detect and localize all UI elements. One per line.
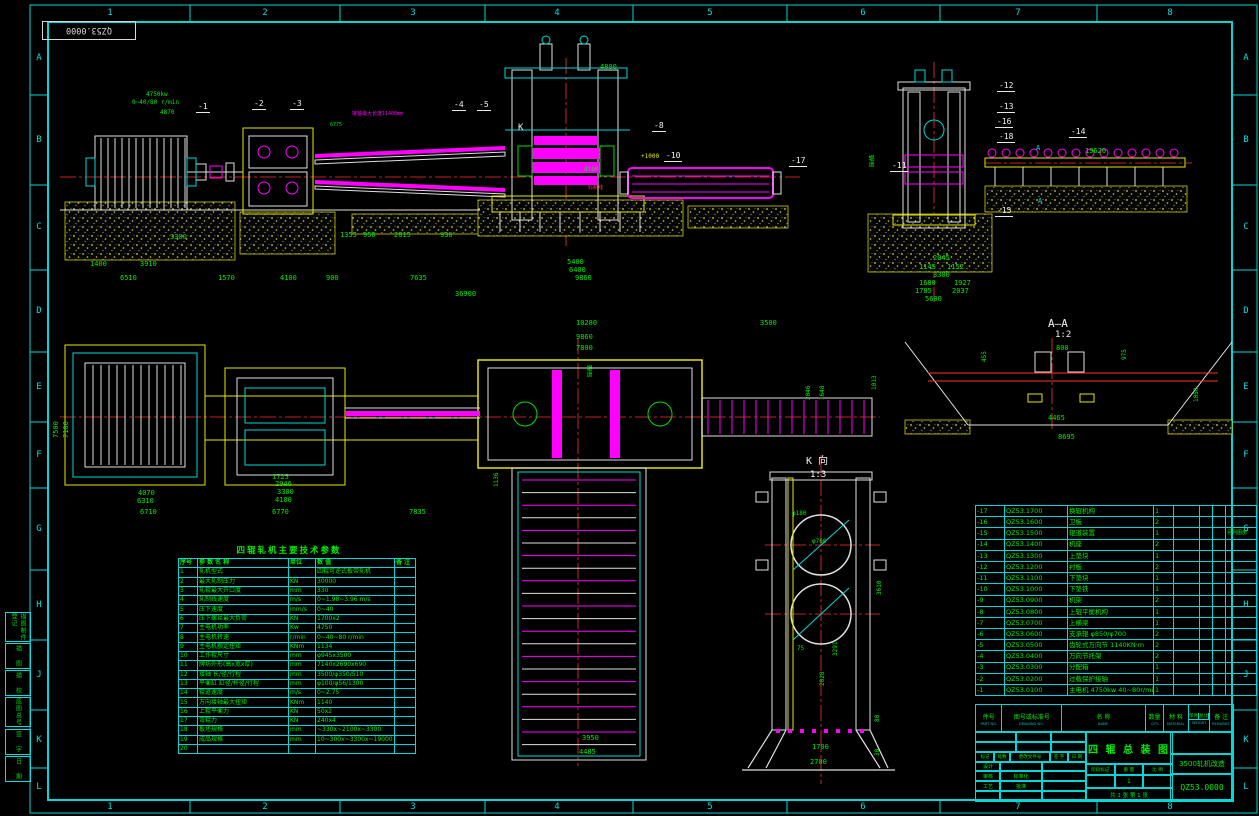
bom-cell (1174, 685, 1200, 696)
bom-cell: -2 (976, 673, 1005, 684)
bom-cell (1213, 550, 1226, 561)
bom-cell (1213, 595, 1226, 606)
table-cell: mm (289, 670, 316, 679)
table-cell: KN (289, 614, 316, 623)
bom-cell: 另列图册 (1226, 528, 1257, 539)
frame-row-label: F (1243, 450, 1248, 460)
part-callout: -12 (997, 82, 1015, 92)
dimension-label: φ180 (792, 511, 806, 517)
bom-cell (1174, 528, 1200, 539)
bom-cell (1200, 550, 1213, 561)
table-cell: 牌坊外形(高x宽x厚) (198, 661, 289, 670)
bom-cell: 2 (1154, 640, 1174, 651)
dimension-label: +1000 (641, 154, 659, 160)
table-cell (395, 670, 416, 679)
table-cell (395, 624, 416, 633)
dimension-label: 1570 (218, 275, 235, 282)
table-row: 20 (179, 744, 416, 753)
bom-row: -11QZ53.1100下垫块1 (976, 573, 1257, 584)
bom-cell: 1 (1154, 506, 1174, 517)
bom-cell (1226, 506, 1257, 517)
dimension-label: 7835 (409, 509, 426, 516)
bom-row: -15QZ53.1500辊道装置1另列图册 (976, 528, 1257, 539)
table-cell: mm (289, 679, 316, 688)
dimension-label: 950 (363, 232, 376, 239)
bom-cell: 2 (1154, 539, 1174, 550)
dimension-label: 2028 (820, 672, 826, 686)
bom-cell: -3 (976, 662, 1005, 673)
dimension-label: 1145 (919, 264, 936, 271)
bom-cell (1174, 517, 1200, 528)
table-cell: 12 (179, 670, 198, 679)
bom-cell: -13 (976, 550, 1005, 561)
table-cell (395, 586, 416, 595)
dimension-label: 2700 (810, 759, 827, 766)
part-callout: -15 (995, 207, 1013, 217)
table-cell: 数 值 (316, 559, 395, 568)
bom-cell (1226, 584, 1257, 595)
table-cell: 7 (179, 624, 198, 633)
drawing-number: QZ53.0000 (1170, 773, 1234, 802)
bom-cell (1213, 685, 1226, 696)
table-cell: 6 (179, 614, 198, 623)
dimension-label: 1785 (915, 288, 932, 295)
bom-header-cell: 材 料MATERIAL (1164, 705, 1189, 732)
dimension-label: 9860 (576, 334, 593, 341)
dimension-label: K 向 (806, 457, 828, 467)
table-cell (395, 717, 416, 726)
dimension-label: 1680 (919, 280, 936, 287)
bom-cell (1226, 606, 1257, 617)
table-cell: mm (289, 726, 316, 735)
table-cell: 4750 (316, 624, 395, 633)
table-cell: 四辊可逆式板带轧机 (316, 568, 395, 577)
dimension-label: 1400 (90, 261, 107, 268)
bom-cell (1213, 528, 1226, 539)
bom-header-cell: 备 注REMARKS (1210, 705, 1233, 732)
table-cell: KN (289, 707, 316, 716)
bom-cell (1200, 673, 1213, 684)
table-cell (395, 614, 416, 623)
project-name: 3500轧机改造 (1170, 753, 1234, 775)
bom-cell (1174, 595, 1200, 606)
bom-row: -1QZ53.0100主电机 4750kw 40~80r/min1 (976, 685, 1257, 696)
margin-note: 描 校 (5, 670, 31, 696)
dimension-label: 6310 (137, 498, 154, 505)
bom-cell (1226, 685, 1257, 696)
dimension-label: 930 (440, 232, 453, 239)
table-cell: 成品规格 (198, 735, 289, 744)
dimension-label: 2946 (275, 481, 292, 488)
bom-cell (1226, 662, 1257, 673)
bom-row: -6QZ53.0600支承辊 φ850/φ7002 (976, 629, 1257, 640)
frame-column-label: 5 (707, 802, 712, 812)
table-row: 13平衡缸 缸径/杆径/行程mmφ100/φ56/1300 (179, 679, 416, 688)
bom-cell: 1 (1154, 573, 1174, 584)
frame-row-label: K (36, 735, 41, 745)
bom-cell (1200, 606, 1213, 617)
bom-cell: -16 (976, 517, 1005, 528)
spec-table: 序号参 数 名 称单位数 值备 注1轧机型式四辊可逆式板带轧机2最大轧制压力KN… (178, 558, 416, 754)
bom-row: -12QZ53.1200衬板2 (976, 561, 1257, 572)
table-row: 12接轴 长/径/行程mm3500/φ350/510 (179, 670, 416, 679)
table-cell: 5 (179, 605, 198, 614)
bom-cell: -11 (976, 573, 1005, 584)
bom-cell (1213, 584, 1226, 595)
bom-cell: QZ53.1100 (1005, 573, 1068, 584)
bom-cell: QZ53.1300 (1005, 550, 1068, 561)
frame-column-label: 1 (107, 8, 112, 18)
table-cell (395, 568, 416, 577)
table-cell: 10~300x~3300x~19000 (316, 735, 395, 744)
frame-column-label: 1 (107, 802, 112, 812)
table-row: 序号参 数 名 称单位数 值备 注 (179, 559, 416, 568)
table-cell: 上辊平衡力 (198, 707, 289, 716)
table-cell: 平衡缸 缸径/杆径/行程 (198, 679, 289, 688)
bom-cell: 主电机 4750kw 40~80r/min (1068, 685, 1154, 696)
bom-cell (1226, 561, 1257, 572)
bom-cell: -15 (976, 528, 1005, 539)
table-row: 3轧辊最大开口度mm330 (179, 586, 416, 595)
table-cell: 接轴 长/径/行程 (198, 670, 289, 679)
part-callout: -11 (890, 162, 908, 172)
cad-drawing-sheet: { "frame": { "corner_label": "QZ53.0000"… (0, 0, 1259, 816)
bom-cell: 1 (1154, 606, 1174, 617)
table-row: 18板坯规格mm~330x~2100x~3300 (179, 726, 416, 735)
frame-column-label: 7 (1015, 8, 1020, 18)
frame-row-label: J (36, 670, 41, 680)
dimension-label: 2046 (806, 386, 812, 400)
table-row: 2最大轧制压力KN30000 (179, 577, 416, 586)
bom-cell (1174, 539, 1200, 550)
frame-row-label: C (36, 222, 41, 232)
table-cell: 弯辊力 (198, 717, 289, 726)
bom-cell (1174, 584, 1200, 595)
bom-cell: 1 (1154, 550, 1174, 561)
bom-cell (1174, 673, 1200, 684)
dimension-label: 辊道 (585, 365, 591, 377)
bom-cell: QZ53.1700 (1005, 506, 1068, 517)
frame-row-label: E (1243, 382, 1248, 392)
bom-cell: -17 (976, 506, 1005, 517)
frame-column-label: 6 (860, 802, 865, 812)
bom-cell (1200, 573, 1213, 584)
bom-row: -10QZ53.1000下垫铁1 (976, 584, 1257, 595)
table-cell: 序号 (179, 559, 198, 568)
dimension-label: 0~40/80 r/min (132, 100, 179, 106)
frame-row-label: A (36, 53, 41, 63)
dimension-label: 455 (982, 351, 988, 362)
bom-table: -17QZ53.1700换辊机构1-16QZ53.1600卫板2-15QZ53.… (975, 505, 1257, 696)
part-callout: -17 (789, 157, 807, 167)
dimension-label: 1050 (1194, 388, 1200, 402)
dimension-label: 5400 (567, 259, 584, 266)
bom-cell (1200, 617, 1213, 628)
bom-cell: QZ53.1400 (1005, 539, 1068, 550)
frame-row-label: G (36, 524, 41, 534)
table-cell (198, 744, 289, 753)
bom-row: -9QZ53.0900机架2 (976, 595, 1257, 606)
dimension-label: 4750kw (146, 92, 168, 98)
frame-column-label: 8 (1167, 8, 1172, 18)
dimension-label: 3500 (760, 320, 777, 327)
dimension-label: 900 (326, 275, 339, 282)
table-cell: 板坯规格 (198, 726, 289, 735)
bom-cell (1174, 506, 1200, 517)
table-row: 14辊道速度m/s0~2.75 (179, 689, 416, 698)
part-callout: -5 (477, 101, 491, 111)
table-cell: 0~2.75 (316, 689, 395, 698)
bom-cell (1213, 561, 1226, 572)
table-cell (395, 679, 416, 688)
table-row: 8主电机转速r/min0~40~80 r/min (179, 633, 416, 642)
bom-cell (1213, 506, 1226, 517)
part-callout: -4 (452, 101, 466, 111)
bom-cell (1200, 506, 1213, 517)
bom-cell: 1 (1154, 662, 1174, 673)
bom-cell (1226, 595, 1257, 606)
table-cell: 8 (179, 633, 198, 642)
table-cell: 13 (179, 679, 198, 688)
bom-header-cell: 件号PART NO. (976, 705, 1002, 732)
bom-cell (1226, 651, 1257, 662)
dimension-label: 4100 (280, 275, 297, 282)
table-cell: 11 (179, 661, 198, 670)
table-cell (395, 633, 416, 642)
bom-cell (1213, 517, 1226, 528)
dimension-label: 1136 (494, 473, 500, 487)
bom-cell (1200, 539, 1213, 550)
bom-header-cell: 图号或标准号DRAWING NO. (1002, 705, 1062, 732)
table-cell: 16 (179, 707, 198, 716)
bom-cell (1213, 651, 1226, 662)
dimension-label: A (1038, 198, 1042, 205)
table-row: 6压下螺丝最大负荷KN1700x2 (179, 614, 416, 623)
dimension-label: 7500 (53, 421, 60, 438)
bom-cell: 上垫块 (1068, 550, 1154, 561)
table-cell (395, 651, 416, 660)
table-cell: 240x4 (316, 717, 395, 726)
table-cell: KN (289, 577, 316, 586)
bom-cell (1213, 606, 1226, 617)
bom-cell: -8 (976, 606, 1005, 617)
table-cell: 工作辊尺寸 (198, 651, 289, 660)
table-cell: 主电机额定扭矩 (198, 642, 289, 651)
bom-cell (1200, 662, 1213, 673)
table-cell (395, 735, 416, 744)
dimension-label: 轧制线 (588, 186, 603, 191)
frame-row-label: E (36, 382, 41, 392)
margin-note: 日 期 (5, 756, 31, 782)
dimension-label: 6710 (140, 509, 157, 516)
frame-row-label: L (1243, 782, 1248, 792)
bom-cell: -5 (976, 640, 1005, 651)
dimension-label: 接轴最大长度11400mm (352, 112, 403, 117)
dimension-label: 4465 (1048, 415, 1065, 422)
bom-cell: QZ53.1000 (1005, 584, 1068, 595)
bom-cell (1200, 595, 1213, 606)
dimension-label: 7800 (576, 345, 593, 352)
bom-header-cell: 单件总计WEIGHT (1189, 705, 1211, 732)
part-callout: -18 (997, 133, 1015, 143)
bom-cell (1226, 617, 1257, 628)
table-cell: mm (289, 661, 316, 670)
table-cell (395, 707, 416, 716)
bom-cell (1174, 640, 1200, 651)
bom-cell: 分配箱 (1068, 662, 1154, 673)
company-cell (1170, 731, 1234, 755)
bom-row: -17QZ53.1700换辊机构1 (976, 506, 1257, 517)
table-row: 16上辊平衡力KN50x2 (179, 707, 416, 716)
bom-cell (1213, 662, 1226, 673)
table-cell: 轧制线速度 (198, 596, 289, 605)
table-cell: 备 注 (395, 559, 416, 568)
table-cell (395, 726, 416, 735)
dimension-label: φ760 (812, 539, 826, 545)
table-row: 15万向接轴最大扭矩KNm1140 (179, 698, 416, 707)
bom-cell: QZ53.0200 (1005, 673, 1068, 684)
bom-cell: 2 (1154, 595, 1174, 606)
title-block-cell (1041, 790, 1087, 802)
part-callout: -14 (1069, 128, 1087, 138)
revision-zone: 标记处数更改文件号签 字日 期设计审核标准化工艺批准 (975, 731, 1085, 800)
dimension-label: 975 (1122, 349, 1128, 360)
bom-cell (1226, 673, 1257, 684)
bom-row: -13QZ53.1300上垫块1 (976, 550, 1257, 561)
bom-cell: 上辊平衡机构 (1068, 606, 1154, 617)
dimension-label: 1013 (872, 376, 878, 390)
bom-row: -2QZ53.0200过载保护接轴1 (976, 673, 1257, 684)
table-cell: 3 (179, 586, 198, 595)
table-cell (289, 568, 316, 577)
bom-cell: QZ53.1200 (1005, 561, 1068, 572)
dimension-label: 6510 (120, 275, 137, 282)
bom-cell: 下垫块 (1068, 573, 1154, 584)
frame-column-label: 4 (554, 8, 559, 18)
bom-cell (1226, 539, 1257, 550)
margin-note: 描 图 (5, 643, 31, 669)
bom-cell: 1 (1154, 673, 1174, 684)
bom-cell: QZ53.0700 (1005, 617, 1068, 628)
frame-column-label: 3 (410, 8, 415, 18)
table-cell: KNm (289, 698, 316, 707)
frame-row-label: L (36, 782, 41, 792)
dimension-label: 5600 (925, 296, 942, 303)
table-cell: 2 (179, 577, 198, 586)
bom-cell (1174, 606, 1200, 617)
dimension-label: 3300 (170, 234, 187, 241)
frame-column-label: 6 (860, 8, 865, 18)
bom-cell: 1 (1154, 685, 1174, 696)
table-cell: 7140x2690x690 (316, 661, 395, 670)
dimension-label: 辊道 (867, 155, 873, 167)
frame-column-label: 4 (554, 802, 559, 812)
corner-drawing-number: QZ53.0000 (42, 21, 136, 40)
table-cell (395, 689, 416, 698)
bom-cell: -6 (976, 629, 1005, 640)
table-cell: mm/s (289, 605, 316, 614)
table-row: 19成品规格mm10~300x~3300x~19000 (179, 735, 416, 744)
bom-cell: QZ53.0100 (1005, 685, 1068, 696)
table-cell: 参 数 名 称 (198, 559, 289, 568)
dimension-label: 7100 (63, 421, 70, 438)
table-cell: mm (289, 735, 316, 744)
table-cell: φ100/φ56/1300 (316, 679, 395, 688)
bom-header: 件号PART NO.图号或标准号DRAWING NO.名 称NAME数量QTY.… (975, 704, 1234, 733)
bom-cell: QZ53.0900 (1005, 595, 1068, 606)
margin-note: 底图总号 (5, 697, 31, 727)
bom-cell (1200, 517, 1213, 528)
bom-cell: 1 (1154, 584, 1174, 595)
dimension-label: 2045 (933, 255, 950, 262)
dimension-label: 36900 (455, 291, 476, 298)
dimension-label: 6775 (330, 123, 342, 128)
table-cell: 辊道速度 (198, 689, 289, 698)
title-block: 标记处数更改文件号签 字日 期设计审核标准化工艺批准 四 辊 总 装 图 阶段标… (975, 731, 1234, 802)
title-block-cell (975, 790, 1001, 802)
frame-column-label: 8 (1167, 802, 1172, 812)
bom-cell (1174, 629, 1200, 640)
dimension-label: 10280 (576, 320, 597, 327)
table-cell: 10 (179, 651, 198, 660)
bom-cell: 2 (1154, 651, 1174, 662)
bom-cell: 1 (1154, 617, 1174, 628)
bom-cell (1174, 550, 1200, 561)
bom-cell: 过载保护接轴 (1068, 673, 1154, 684)
bom-cell (1200, 584, 1213, 595)
bom-cell: -10 (976, 584, 1005, 595)
margin-note: 描图制件登记 (5, 612, 31, 642)
spec-table-title: 四辊轧机主要技术参数 (178, 544, 400, 556)
frame-column-label: 2 (262, 802, 267, 812)
table-row: 1轧机型式四辊可逆式板带轧机 (179, 568, 416, 577)
table-cell: 30000 (316, 577, 395, 586)
bom-cell: -7 (976, 617, 1005, 628)
frame-row-label: D (1243, 306, 1248, 316)
frame-row-label: H (36, 600, 41, 610)
frame-row-label: D (36, 306, 41, 316)
table-cell: 18 (179, 726, 198, 735)
dimension-label: 3300 (277, 489, 294, 496)
title-block-cell (999, 790, 1043, 802)
bom-cell: 下垫铁 (1068, 584, 1154, 595)
bom-cell: 卫板 (1068, 517, 1154, 528)
dimension-label: 8695 (1058, 434, 1075, 441)
dimension-label: 4100 (584, 167, 598, 173)
frame-row-label: F (36, 450, 41, 460)
bom-cell (1200, 629, 1213, 640)
bom-row: -4QZ53.0400万向节托架2 (976, 651, 1257, 662)
dimension-label: 80 (875, 715, 881, 722)
bom-cell: 2 (1154, 561, 1174, 572)
bom-cell: 2 (1154, 517, 1174, 528)
table-cell: 1700x2 (316, 614, 395, 623)
bom-row: -5QZ53.0500齿轮式万向节 1140KN·m2 (976, 640, 1257, 651)
bom-cell: -9 (976, 595, 1005, 606)
bom-cell: QZ53.0500 (1005, 640, 1068, 651)
dimension-label: 1152 (947, 264, 964, 271)
dimension-label: 4070 (138, 490, 155, 497)
table-row: 5压下速度mm/s0~40 (179, 605, 416, 614)
table-cell (395, 661, 416, 670)
bom-cell: 上横梁 (1068, 617, 1154, 628)
frame-row-label: C (1243, 222, 1248, 232)
table-cell: m/s (289, 596, 316, 605)
dimension-label: A (1036, 145, 1040, 152)
bom-cell: -14 (976, 539, 1005, 550)
bom-cell (1213, 640, 1226, 651)
dimension-label: 1648 (820, 386, 826, 400)
